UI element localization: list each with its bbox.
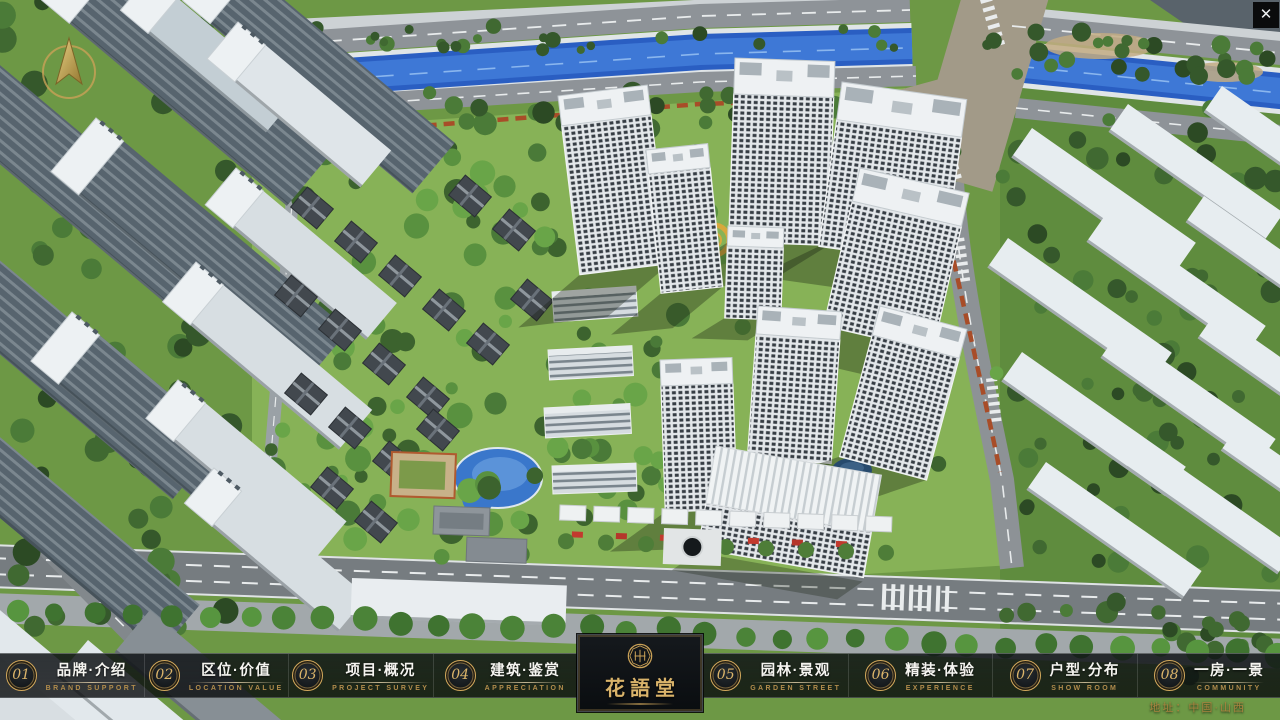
render-shape <box>1034 438 1046 450</box>
render-shape <box>534 226 555 247</box>
render-shape <box>572 439 592 459</box>
render-shape <box>797 514 824 530</box>
render-shape <box>1029 43 1048 62</box>
render-shape <box>1244 167 1267 190</box>
render-shape <box>1135 67 1150 82</box>
render-shape <box>1092 554 1106 568</box>
nav-label-en: LOCATION VALUE <box>189 685 284 692</box>
nav-number-badge: 03 <box>292 660 323 691</box>
nav-label-divider <box>905 682 975 683</box>
render-shape <box>527 467 544 484</box>
render-shape <box>499 315 512 328</box>
render-shape <box>466 537 527 563</box>
render-shape <box>473 34 482 43</box>
render-shape <box>739 62 761 75</box>
render-shape <box>806 628 828 650</box>
render-shape <box>150 496 173 519</box>
render-shape <box>623 383 647 407</box>
render-shape <box>45 604 63 622</box>
render-shape <box>389 612 413 636</box>
nav-label-divider <box>189 682 284 683</box>
render-shape <box>846 629 865 648</box>
render-shape <box>311 606 335 630</box>
render-shape <box>1069 131 1086 148</box>
render-shape <box>8 564 30 586</box>
render-shape <box>1125 290 1138 303</box>
nav-item-garden-landscape[interactable]: 05 园林·景观 GARDEN STREET <box>704 654 848 697</box>
render-shape <box>885 627 909 651</box>
render-shape <box>445 96 463 114</box>
nav-label-en: GARDEN STREET <box>750 685 841 692</box>
nav-label-zh: 品牌·介绍 <box>57 659 127 680</box>
render-shape <box>477 476 501 500</box>
masterplan-viewport: ✕ 01 品牌·介绍 BRAND SUPPORT 02 区位·价值 LOCATI… <box>0 0 1280 720</box>
nav-label-en: EXPERIENCE <box>906 685 975 692</box>
render-shape <box>762 310 781 321</box>
render-shape <box>439 512 484 530</box>
nav-number-badge: 07 <box>1010 660 1041 691</box>
render-shape <box>33 245 54 266</box>
brand-name: 花語堂 <box>600 672 680 701</box>
render-shape <box>486 19 501 34</box>
render-shape <box>1060 604 1073 617</box>
render-shape <box>986 33 1002 49</box>
render-shape <box>532 101 554 123</box>
render-shape <box>272 606 296 630</box>
render-shape <box>493 175 515 197</box>
render-shape <box>355 470 368 483</box>
nav-number-badge: 08 <box>1154 660 1185 691</box>
render-shape <box>371 32 380 41</box>
render-shape <box>399 460 446 490</box>
render-shape <box>758 540 774 556</box>
render-shape <box>699 86 713 100</box>
nav-label-zh: 项目·概况 <box>346 659 416 680</box>
render-shape <box>577 46 585 54</box>
nav-label-zh: 区位·价值 <box>201 659 271 680</box>
nav-item-interior-experience[interactable]: 06 精装·体验 EXPERIENCE <box>848 654 993 697</box>
render-shape <box>200 607 221 628</box>
render-shape <box>345 446 371 472</box>
render-shape <box>416 189 439 212</box>
render-shape <box>1151 605 1165 619</box>
render-shape <box>128 509 148 529</box>
render-shape <box>766 231 779 238</box>
render-shape <box>397 508 420 531</box>
render-shape <box>682 537 703 558</box>
render-shape <box>729 511 756 527</box>
render-shape <box>661 509 688 525</box>
render-shape <box>142 530 161 549</box>
render-shape <box>663 528 722 566</box>
nav-label-zh: 园林·景观 <box>761 659 831 680</box>
render-shape <box>544 403 631 437</box>
render-shape <box>1102 113 1115 126</box>
render-shape <box>577 327 591 341</box>
nav-item-architecture[interactable]: 04 建筑·鉴赏 APPRECIATION <box>433 654 578 697</box>
render-shape <box>753 38 765 50</box>
render-shape <box>396 332 415 351</box>
nav-label-en: SHOW ROOM <box>1051 685 1118 692</box>
nav-item-one-room-one-view[interactable]: 08 一房·一景 COMMUNITY <box>1137 654 1280 697</box>
render-shape <box>380 38 388 46</box>
render-shape <box>1159 423 1178 442</box>
render-shape <box>1112 388 1125 401</box>
render-shape <box>650 336 662 348</box>
render-shape <box>548 346 633 380</box>
render-shape <box>1021 499 1035 513</box>
nav-number-badge: 06 <box>865 660 896 691</box>
render-shape <box>353 606 378 631</box>
render-shape <box>390 452 455 498</box>
render-shape <box>693 26 708 41</box>
render-shape <box>438 41 450 53</box>
render-shape <box>695 510 722 526</box>
nav-item-floorplan-distribution[interactable]: 07 户型·分布 SHOW ROOM <box>992 654 1137 697</box>
render-shape <box>736 628 755 647</box>
render-shape <box>470 99 488 117</box>
nav-label-zh: 户型·分布 <box>1050 659 1120 680</box>
render-shape <box>1108 279 1127 298</box>
brand-seal-icon <box>626 642 654 670</box>
render-shape <box>552 463 637 494</box>
render-shape <box>597 99 612 110</box>
render-shape <box>1035 633 1057 655</box>
render-shape <box>351 578 567 625</box>
nav-label-divider <box>485 682 566 683</box>
render-shape <box>1147 310 1162 325</box>
render-shape <box>459 113 476 130</box>
render-shape <box>817 314 836 325</box>
render-shape <box>616 533 627 539</box>
nav-label-en: PROJECT SURVEY <box>332 685 429 692</box>
render-shape <box>999 608 1014 623</box>
nav-item-project-survey[interactable]: 03 项目·概况 PROJECT SURVEY <box>288 654 433 697</box>
render-shape <box>711 362 727 372</box>
render-shape <box>1190 67 1208 85</box>
render-shape <box>7 600 29 622</box>
render-shape <box>831 515 858 531</box>
render-shape <box>878 545 894 561</box>
render-shape <box>459 613 485 639</box>
nav-label-divider <box>1050 682 1120 683</box>
render-shape <box>242 607 262 627</box>
render-shape <box>539 33 548 42</box>
render-shape <box>1115 43 1130 58</box>
render-shape <box>1011 68 1023 80</box>
render-shape <box>655 32 668 45</box>
aerial-render <box>0 0 1280 720</box>
nav-label-en: BRAND SUPPORT <box>46 685 138 692</box>
render-shape <box>747 334 839 464</box>
nav-number-badge: 01 <box>6 660 37 691</box>
render-shape <box>405 25 414 34</box>
render-shape <box>593 506 620 522</box>
nav-label-en: COMMUNITY <box>1197 685 1262 692</box>
render-shape <box>838 24 848 34</box>
render-shape <box>638 536 654 552</box>
logo-panel[interactable]: 花語堂 <box>577 634 703 712</box>
render-shape <box>558 533 574 549</box>
render-shape <box>1093 38 1104 49</box>
render-shape <box>428 615 450 637</box>
nav-number-badge: 02 <box>149 660 180 691</box>
render-shape <box>690 148 704 158</box>
render-shape <box>542 614 566 638</box>
render-shape <box>275 423 290 438</box>
render-shape <box>1162 622 1177 637</box>
render-shape <box>123 605 143 625</box>
close-button[interactable]: ✕ <box>1253 2 1279 28</box>
render-shape <box>1208 622 1224 638</box>
render-shape <box>627 507 654 523</box>
render-shape <box>634 446 653 465</box>
render-shape <box>333 352 351 370</box>
render-shape <box>990 366 1004 380</box>
render-shape <box>1043 247 1060 264</box>
render-shape <box>649 167 723 293</box>
nav-label-divider <box>46 682 138 683</box>
render-shape <box>1107 593 1126 612</box>
render-shape <box>699 116 712 129</box>
render-shape <box>865 516 892 532</box>
render-shape <box>81 259 102 280</box>
nav-label-divider <box>1194 682 1264 683</box>
render-shape <box>1028 24 1045 41</box>
render-shape <box>751 233 760 239</box>
nav-label-en: APPRECIATION <box>485 685 566 692</box>
render-shape <box>1187 122 1208 143</box>
render-shape <box>868 25 881 38</box>
render-shape <box>464 243 487 266</box>
render-shape <box>500 616 525 641</box>
render-shape <box>776 70 792 81</box>
render-shape <box>547 437 569 459</box>
render-shape <box>763 512 790 528</box>
render-shape <box>1028 224 1048 244</box>
render-shape <box>807 65 829 78</box>
render-shape <box>1072 22 1091 41</box>
render-shape <box>1217 59 1236 78</box>
render-shape <box>161 605 183 627</box>
nav-number-badge: 05 <box>710 660 741 691</box>
render-shape <box>1018 448 1038 468</box>
address-text: 地址：中国·山西 <box>1149 699 1246 715</box>
nav-number-badge: 04 <box>445 660 476 691</box>
render-shape <box>434 549 450 565</box>
render-shape <box>773 630 792 649</box>
render-shape <box>651 152 665 162</box>
render-shape <box>382 429 396 443</box>
render-shape <box>1138 38 1149 49</box>
render-shape <box>673 153 684 161</box>
render-shape <box>1207 453 1220 466</box>
render-shape <box>390 399 405 414</box>
brand-subtitle-line <box>607 703 673 705</box>
render-shape <box>1111 59 1127 75</box>
render-shape <box>733 230 746 237</box>
render-shape <box>511 511 530 530</box>
render-shape <box>10 419 34 443</box>
render-shape <box>343 527 367 551</box>
render-shape <box>1044 59 1058 73</box>
render-shape <box>1059 52 1075 68</box>
render-shape <box>792 317 806 326</box>
nav-item-location-value[interactable]: 02 区位·价值 LOCATION VALUE <box>144 654 289 697</box>
render-shape <box>890 44 898 52</box>
render-shape <box>451 41 462 52</box>
render-shape <box>368 397 387 416</box>
render-shape <box>665 363 681 373</box>
render-shape <box>572 531 583 537</box>
nav-label-zh: 建筑·鉴赏 <box>490 659 560 680</box>
render-shape <box>1116 152 1130 166</box>
render-shape <box>1086 147 1109 170</box>
close-icon: ✕ <box>1260 6 1273 23</box>
render-shape <box>1229 611 1246 628</box>
render-shape <box>531 193 550 212</box>
render-shape <box>1007 187 1026 206</box>
render-shape <box>1238 68 1255 85</box>
render-shape <box>85 602 106 623</box>
nav-group-right: 05 园林·景观 GARDEN STREET 06 精装·体验 EXPERIEN… <box>703 654 1280 697</box>
render-shape <box>1212 36 1231 55</box>
render-shape <box>423 86 436 99</box>
render-shape <box>484 392 506 414</box>
nav-item-brand-intro[interactable]: 01 品牌·介绍 BRAND SUPPORT <box>0 654 144 697</box>
render-shape <box>528 143 546 161</box>
render-shape <box>446 382 458 394</box>
render-shape <box>1033 540 1047 554</box>
render-shape <box>690 366 702 374</box>
render-shape <box>265 443 278 456</box>
nav-group-left: 01 品牌·介绍 BRAND SUPPORT 02 区位·价值 LOCATION… <box>0 654 578 697</box>
nav-label-zh: 一房·一景 <box>1194 659 1264 680</box>
render-shape <box>536 43 549 56</box>
render-shape <box>876 40 887 51</box>
compass-icon <box>36 34 102 104</box>
render-shape <box>642 466 661 485</box>
nav-label-divider <box>332 682 429 683</box>
render-shape <box>798 542 814 558</box>
render-shape <box>1250 42 1264 56</box>
render-shape <box>748 538 759 544</box>
render-shape <box>1232 390 1245 403</box>
render-shape <box>729 94 834 245</box>
render-shape <box>1103 36 1114 47</box>
render-shape <box>598 535 614 551</box>
nav-label-divider <box>750 682 841 683</box>
nav-label-zh: 精装·体验 <box>905 659 975 680</box>
render-shape <box>838 543 854 559</box>
render-shape <box>559 505 586 521</box>
render-shape <box>996 170 1010 184</box>
render-shape <box>587 42 596 51</box>
render-shape <box>404 213 429 238</box>
render-shape <box>1082 378 1094 390</box>
render-shape <box>1017 603 1036 622</box>
